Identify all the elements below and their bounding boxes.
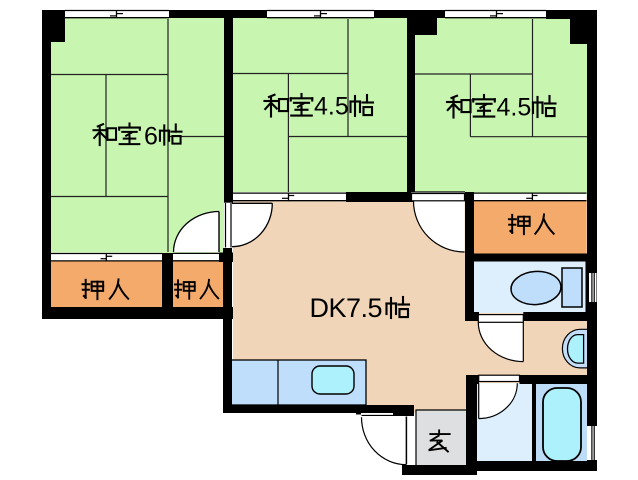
svg-text:4.5: 4.5 — [314, 93, 349, 121]
svg-text:DK7.5: DK7.5 — [310, 293, 383, 323]
svg-text:4.5: 4.5 — [497, 94, 532, 122]
svg-text:6: 6 — [144, 123, 158, 151]
